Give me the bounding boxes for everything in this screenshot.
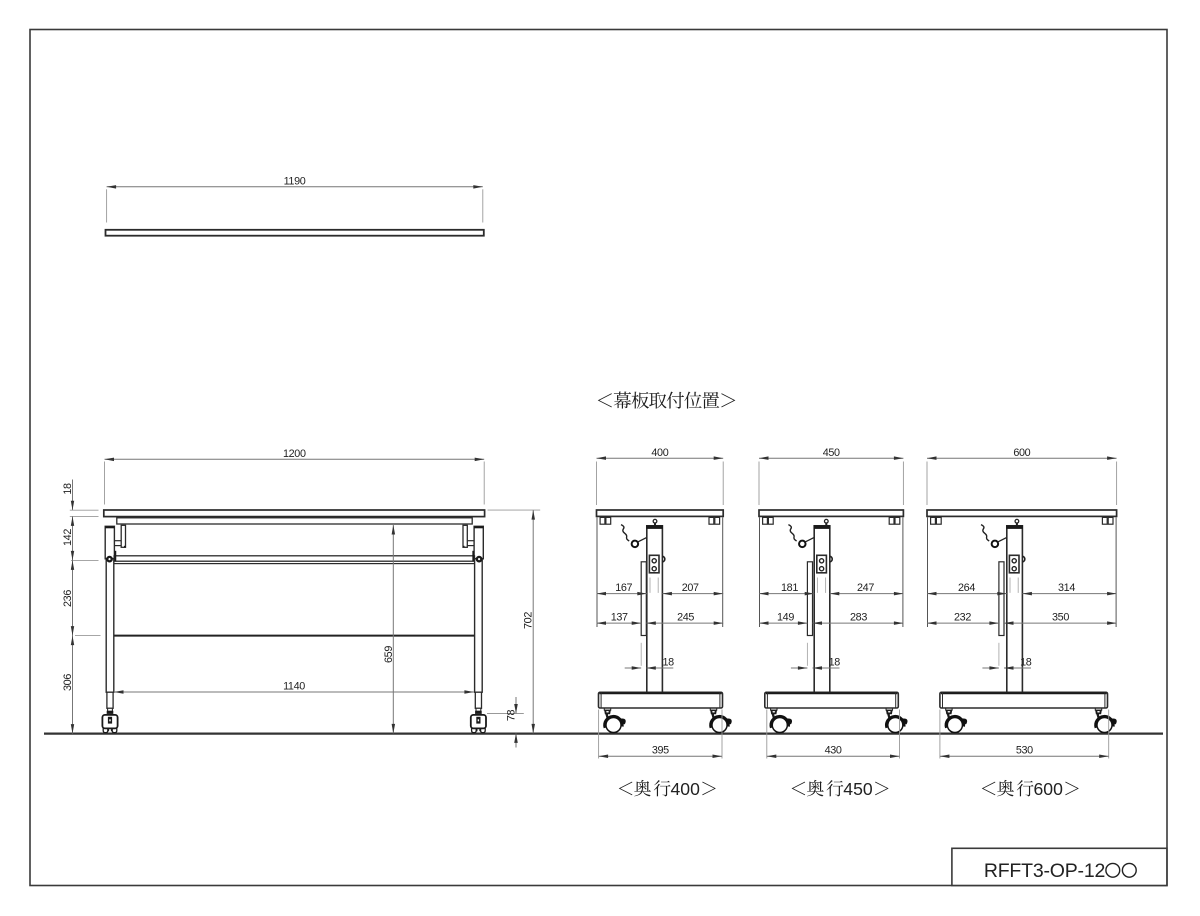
svg-text:600: 600 — [1013, 447, 1030, 459]
svg-text:236: 236 — [62, 590, 74, 607]
svg-text:247: 247 — [857, 582, 874, 594]
svg-text:18: 18 — [62, 483, 74, 495]
svg-text:306: 306 — [62, 674, 74, 691]
svg-text:18: 18 — [829, 657, 841, 669]
svg-text:530: 530 — [1016, 745, 1033, 757]
svg-text:18: 18 — [1020, 657, 1032, 669]
svg-text:395: 395 — [652, 745, 669, 757]
svg-text:181: 181 — [781, 582, 798, 594]
svg-text:78: 78 — [506, 710, 518, 722]
svg-text:600: 600 — [1034, 779, 1064, 799]
svg-text:702: 702 — [523, 612, 535, 629]
svg-text:1200: 1200 — [283, 448, 306, 460]
svg-text:283: 283 — [850, 612, 867, 624]
svg-text:167: 167 — [615, 582, 632, 594]
svg-text:245: 245 — [677, 612, 694, 624]
svg-text:RFFT3-OP-12: RFFT3-OP-12 — [984, 860, 1105, 882]
svg-text:314: 314 — [1058, 582, 1075, 594]
svg-text:350: 350 — [1052, 612, 1069, 624]
svg-text:137: 137 — [611, 612, 628, 624]
svg-text:400: 400 — [671, 779, 701, 799]
svg-text:149: 149 — [777, 612, 794, 624]
svg-text:232: 232 — [954, 612, 971, 624]
svg-text:400: 400 — [651, 447, 668, 459]
svg-text:1140: 1140 — [283, 680, 305, 692]
svg-text:450: 450 — [843, 779, 873, 799]
svg-text:207: 207 — [682, 582, 699, 594]
svg-text:142: 142 — [62, 529, 74, 546]
svg-text:264: 264 — [958, 582, 975, 594]
svg-text:659: 659 — [383, 646, 395, 663]
svg-text:450: 450 — [823, 447, 840, 459]
svg-text:1190: 1190 — [284, 175, 306, 187]
svg-text:18: 18 — [662, 657, 674, 669]
svg-text:430: 430 — [825, 745, 842, 757]
